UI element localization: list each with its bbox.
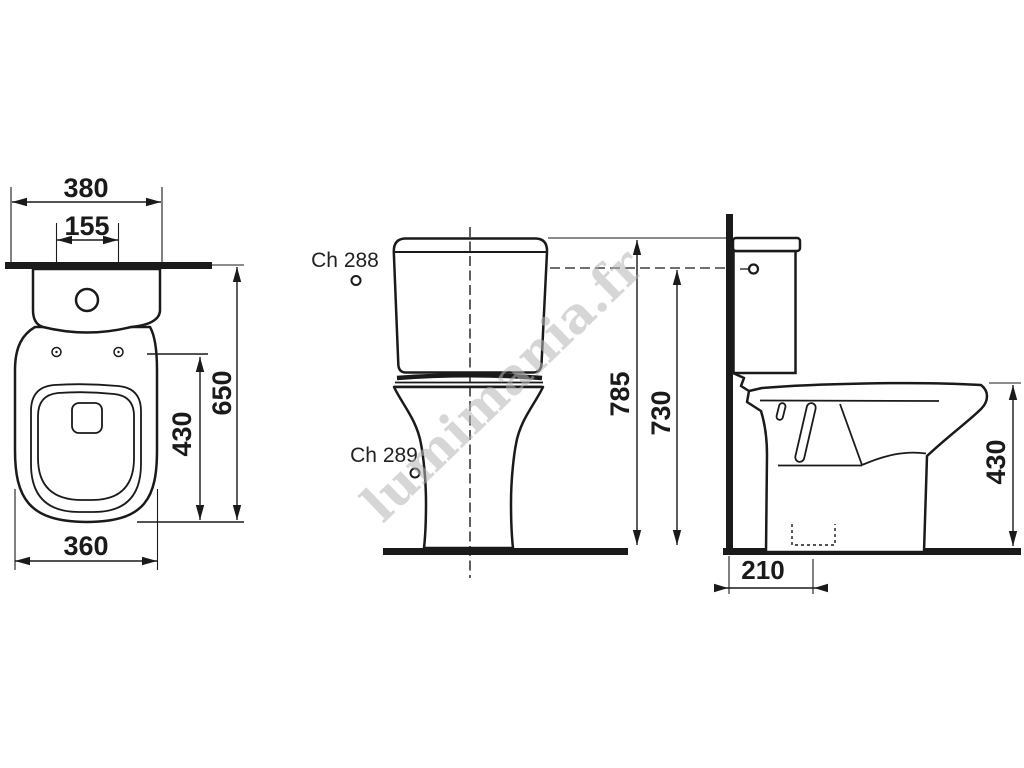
arrowhead-inward-right [814, 584, 828, 592]
rim-underside-line [760, 401, 939, 402]
arrowhead-up [1009, 385, 1017, 400]
arrowhead-down [633, 530, 641, 545]
cistern-side-lid [733, 238, 800, 251]
dim-lid-depth-label: 430 [167, 411, 197, 456]
dim-rim-height-label: 430 [981, 439, 1011, 484]
arrowhead-down [233, 505, 241, 520]
arrowhead-left [15, 557, 30, 565]
dim-overall-height-label: 785 [605, 371, 635, 416]
arrowhead-up [196, 357, 204, 372]
side-view: 430 210 [714, 214, 1021, 594]
ch288-marker-circle [352, 276, 361, 285]
flush-lever-circle [749, 265, 758, 274]
hinge-bolt-right-dot [117, 351, 119, 353]
dim-hinge-spacing-label: 155 [64, 211, 109, 241]
hinge-bolt-left-dot [55, 351, 57, 353]
dim-overall-width-label: 380 [63, 173, 108, 203]
wall-section [726, 214, 733, 555]
arrowhead-right [142, 557, 157, 565]
arrowhead-up [233, 267, 241, 282]
arrowhead-right [146, 198, 161, 206]
arrowhead-left [12, 198, 27, 206]
dim-bowl-width-label: 360 [63, 531, 108, 561]
label-ch288: Ch 288 [311, 249, 379, 272]
floor-line [383, 548, 628, 555]
arrowhead-inward-left [714, 584, 728, 592]
technical-drawing-page: 380 155 430 [0, 0, 1024, 768]
arrowhead-down [673, 530, 681, 545]
top-view: 380 155 430 [5, 173, 244, 570]
arrowhead-down [1009, 531, 1017, 546]
dim-outlet-offset-label: 210 [741, 555, 784, 585]
dim-overall-depth-label: 650 [207, 370, 237, 415]
arrowhead-down [196, 505, 204, 520]
arrowhead-up [673, 270, 681, 285]
dim-lever-height-label: 730 [646, 390, 676, 435]
arrowhead-up [633, 240, 641, 255]
toilet-dimension-drawing: 380 155 430 [0, 0, 1024, 768]
flush-button-circle [76, 289, 98, 311]
